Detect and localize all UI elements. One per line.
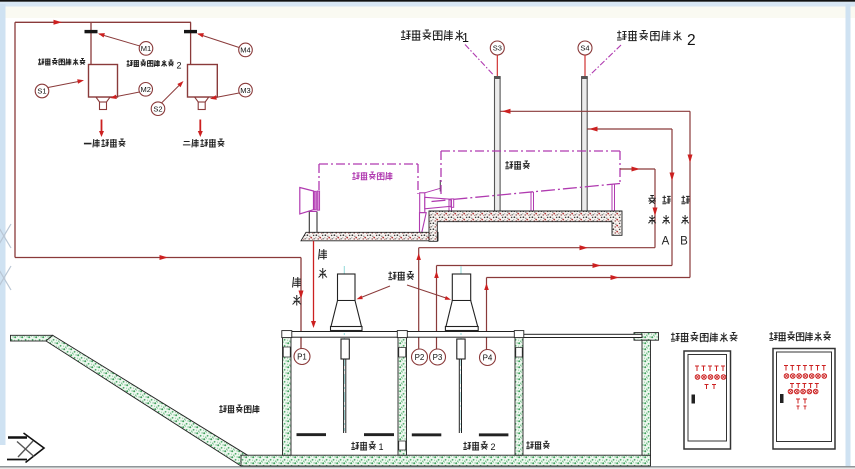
svg-text:S2: S2 bbox=[153, 104, 162, 113]
svg-text:2: 2 bbox=[491, 442, 496, 452]
svg-text:A: A bbox=[662, 236, 670, 248]
svg-text:M1: M1 bbox=[141, 44, 151, 53]
svg-text:1: 1 bbox=[379, 442, 384, 452]
svg-text:S4: S4 bbox=[580, 44, 589, 53]
svg-text:P2: P2 bbox=[415, 353, 425, 362]
svg-text:1: 1 bbox=[462, 31, 469, 45]
svg-text:P1: P1 bbox=[297, 352, 307, 361]
svg-text:M3: M3 bbox=[240, 86, 250, 95]
svg-text:M4: M4 bbox=[240, 46, 250, 55]
svg-text:2: 2 bbox=[687, 32, 696, 49]
svg-text:P4: P4 bbox=[483, 353, 493, 362]
svg-text:S1: S1 bbox=[37, 87, 46, 96]
svg-text:P3: P3 bbox=[433, 353, 443, 362]
svg-text:2: 2 bbox=[177, 61, 182, 71]
svg-text:M2: M2 bbox=[140, 85, 150, 94]
svg-text:S3: S3 bbox=[493, 44, 502, 53]
svg-text:B: B bbox=[680, 236, 688, 248]
